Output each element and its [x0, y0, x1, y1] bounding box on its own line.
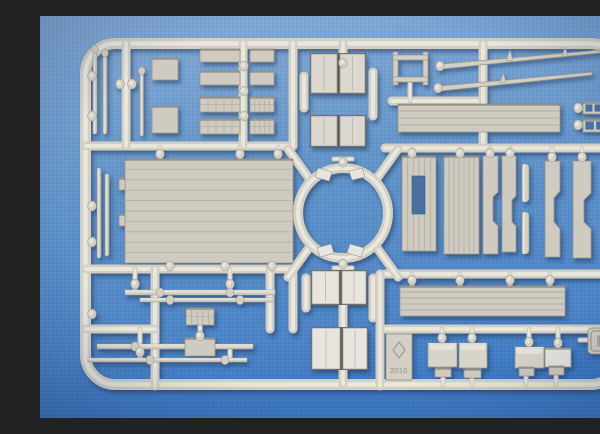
photo-vignette: [40, 16, 600, 418]
photo-canvas: D2010: [40, 16, 600, 418]
sprue-photo: D2010: [40, 16, 600, 418]
